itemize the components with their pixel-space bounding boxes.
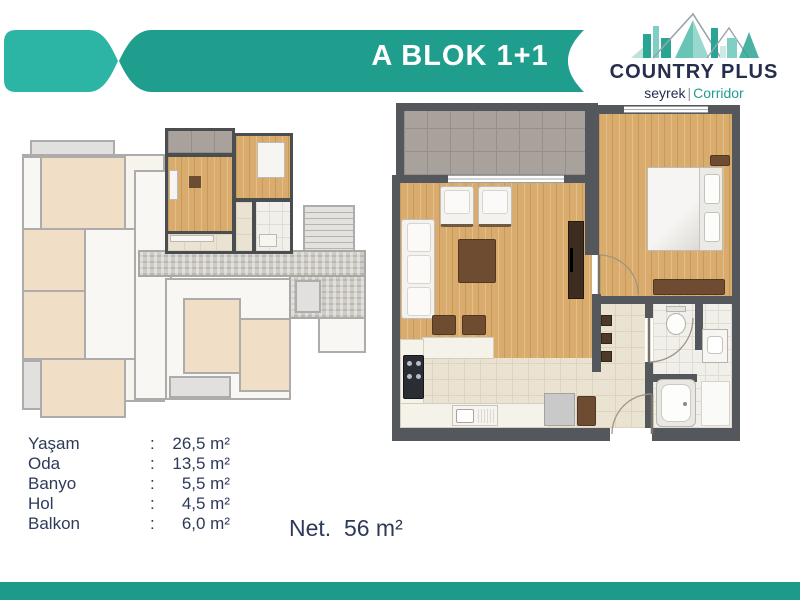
row-separator: : (150, 474, 164, 494)
armchair-2 (478, 186, 512, 227)
wall-balcony-left (396, 103, 404, 183)
wall-mid-lower (592, 294, 601, 372)
skyline-icon (619, 6, 769, 60)
bar-stool-2 (462, 315, 486, 335)
overview-bottom-balcony (169, 376, 231, 398)
tagline-right: Corridor (693, 85, 744, 101)
wall-window-right (564, 175, 585, 183)
toilet (664, 306, 688, 336)
mini-table (189, 176, 201, 188)
hall-cabinet-3 (601, 351, 612, 362)
building-overview-plan (15, 110, 367, 422)
overview-room-6 (40, 358, 126, 418)
row-label: Hol (28, 494, 150, 514)
overview-balcony-left (22, 360, 42, 410)
table-row: Hol : 4,5 m² (28, 494, 230, 514)
coffee-table (458, 239, 496, 283)
row-separator: : (150, 494, 164, 514)
overview-bottom-bedroom (239, 318, 291, 392)
row-label: Yaşam (28, 434, 150, 454)
row-separator: : (150, 514, 164, 534)
brand-logo: COUNTRY PLUS seyrek|Corridor (596, 6, 792, 101)
wall-balcony-top (396, 103, 598, 111)
hall-cabinet-1 (601, 315, 612, 326)
wall-right (732, 107, 740, 441)
table-row: Balkon : 6,0 m² (28, 514, 230, 534)
brand-name: COUNTRY PLUS (596, 61, 792, 84)
room-area-table: Yaşam : 26,5 m² Oda : 13,5 m² Banyo : 5,… (28, 434, 230, 534)
overview-bottom-living (183, 298, 241, 374)
wall-bottom-left (392, 428, 610, 441)
overview-room-3 (22, 228, 86, 292)
bathroom-sink (702, 329, 728, 363)
bedroom-window (624, 106, 708, 113)
bed (647, 167, 723, 251)
unit-floor-plan (392, 103, 740, 441)
row-value: 13,5 m² (164, 454, 230, 474)
row-separator: : (150, 434, 164, 454)
row-value: 26,5 m² (164, 434, 230, 454)
footer-bar (0, 582, 800, 600)
tagline-left: seyrek (644, 85, 685, 101)
kitchen-sink (452, 405, 498, 426)
highlighted-unit (165, 128, 293, 254)
row-separator: : (150, 454, 164, 474)
armchair-1 (440, 186, 474, 227)
overview-elevator (295, 280, 321, 313)
tagline-divider: | (686, 85, 694, 101)
wall-hall-bath-upper (645, 304, 653, 318)
overview-room-5 (84, 228, 136, 360)
row-value: 5,5 m² (164, 474, 230, 494)
refrigerator (544, 393, 575, 426)
wall-window-left (396, 175, 448, 183)
sofa (401, 219, 435, 319)
brand-tagline: seyrek|Corridor (596, 85, 792, 101)
brochure-page: A BLOK 1+1 COUNTRY PLUS seyrek|Corridor (0, 0, 800, 600)
wall-hall-bath-lower (645, 362, 653, 428)
overview-room-2 (22, 156, 42, 230)
table-row: Oda : 13,5 m² (28, 454, 230, 474)
overview-corridor (138, 250, 366, 277)
mini-sofa (169, 170, 178, 200)
wall-bottom-right (652, 428, 740, 441)
bar-counter (422, 337, 494, 359)
overview-room-1 (40, 156, 126, 230)
table-row: Yaşam : 26,5 m² (28, 434, 230, 454)
living-room-window (448, 175, 564, 183)
mini-bathtub (259, 234, 277, 247)
overview-room-4 (22, 290, 86, 360)
bar-stool-1 (432, 315, 456, 335)
row-value: 6,0 m² (164, 514, 230, 534)
overview-right-rooms (318, 317, 366, 353)
row-label: Oda (28, 454, 150, 474)
kitchen-cabinet (577, 396, 596, 426)
nightstand (710, 155, 730, 166)
hall-cabinet-2 (601, 333, 612, 344)
mini-bed (257, 142, 285, 178)
wall-bedroom-bathroom (599, 296, 740, 304)
bathtub (656, 379, 696, 427)
mini-balcony (165, 128, 235, 156)
tv-unit (568, 221, 584, 299)
table-row: Banyo : 5,5 m² (28, 474, 230, 494)
row-label: Balkon (28, 514, 150, 534)
mini-counter (170, 235, 214, 242)
mini-hall (233, 199, 255, 254)
overview-stairs (303, 205, 355, 252)
stove (403, 355, 424, 399)
row-label: Banyo (28, 474, 150, 494)
wall-mid-upper (585, 105, 599, 255)
wardrobe (653, 279, 725, 295)
balcony-floor (404, 111, 585, 175)
wall-left (392, 175, 400, 436)
summary-net: Net. 56 m² (289, 512, 496, 545)
shower-tray (701, 381, 730, 426)
row-value: 4,5 m² (164, 494, 230, 514)
page-title: A BLOK 1+1 (352, 40, 568, 73)
area-summary: Net. 56 m² Brüt. 67 m² Genel Brüt.106,5 … (289, 446, 496, 600)
